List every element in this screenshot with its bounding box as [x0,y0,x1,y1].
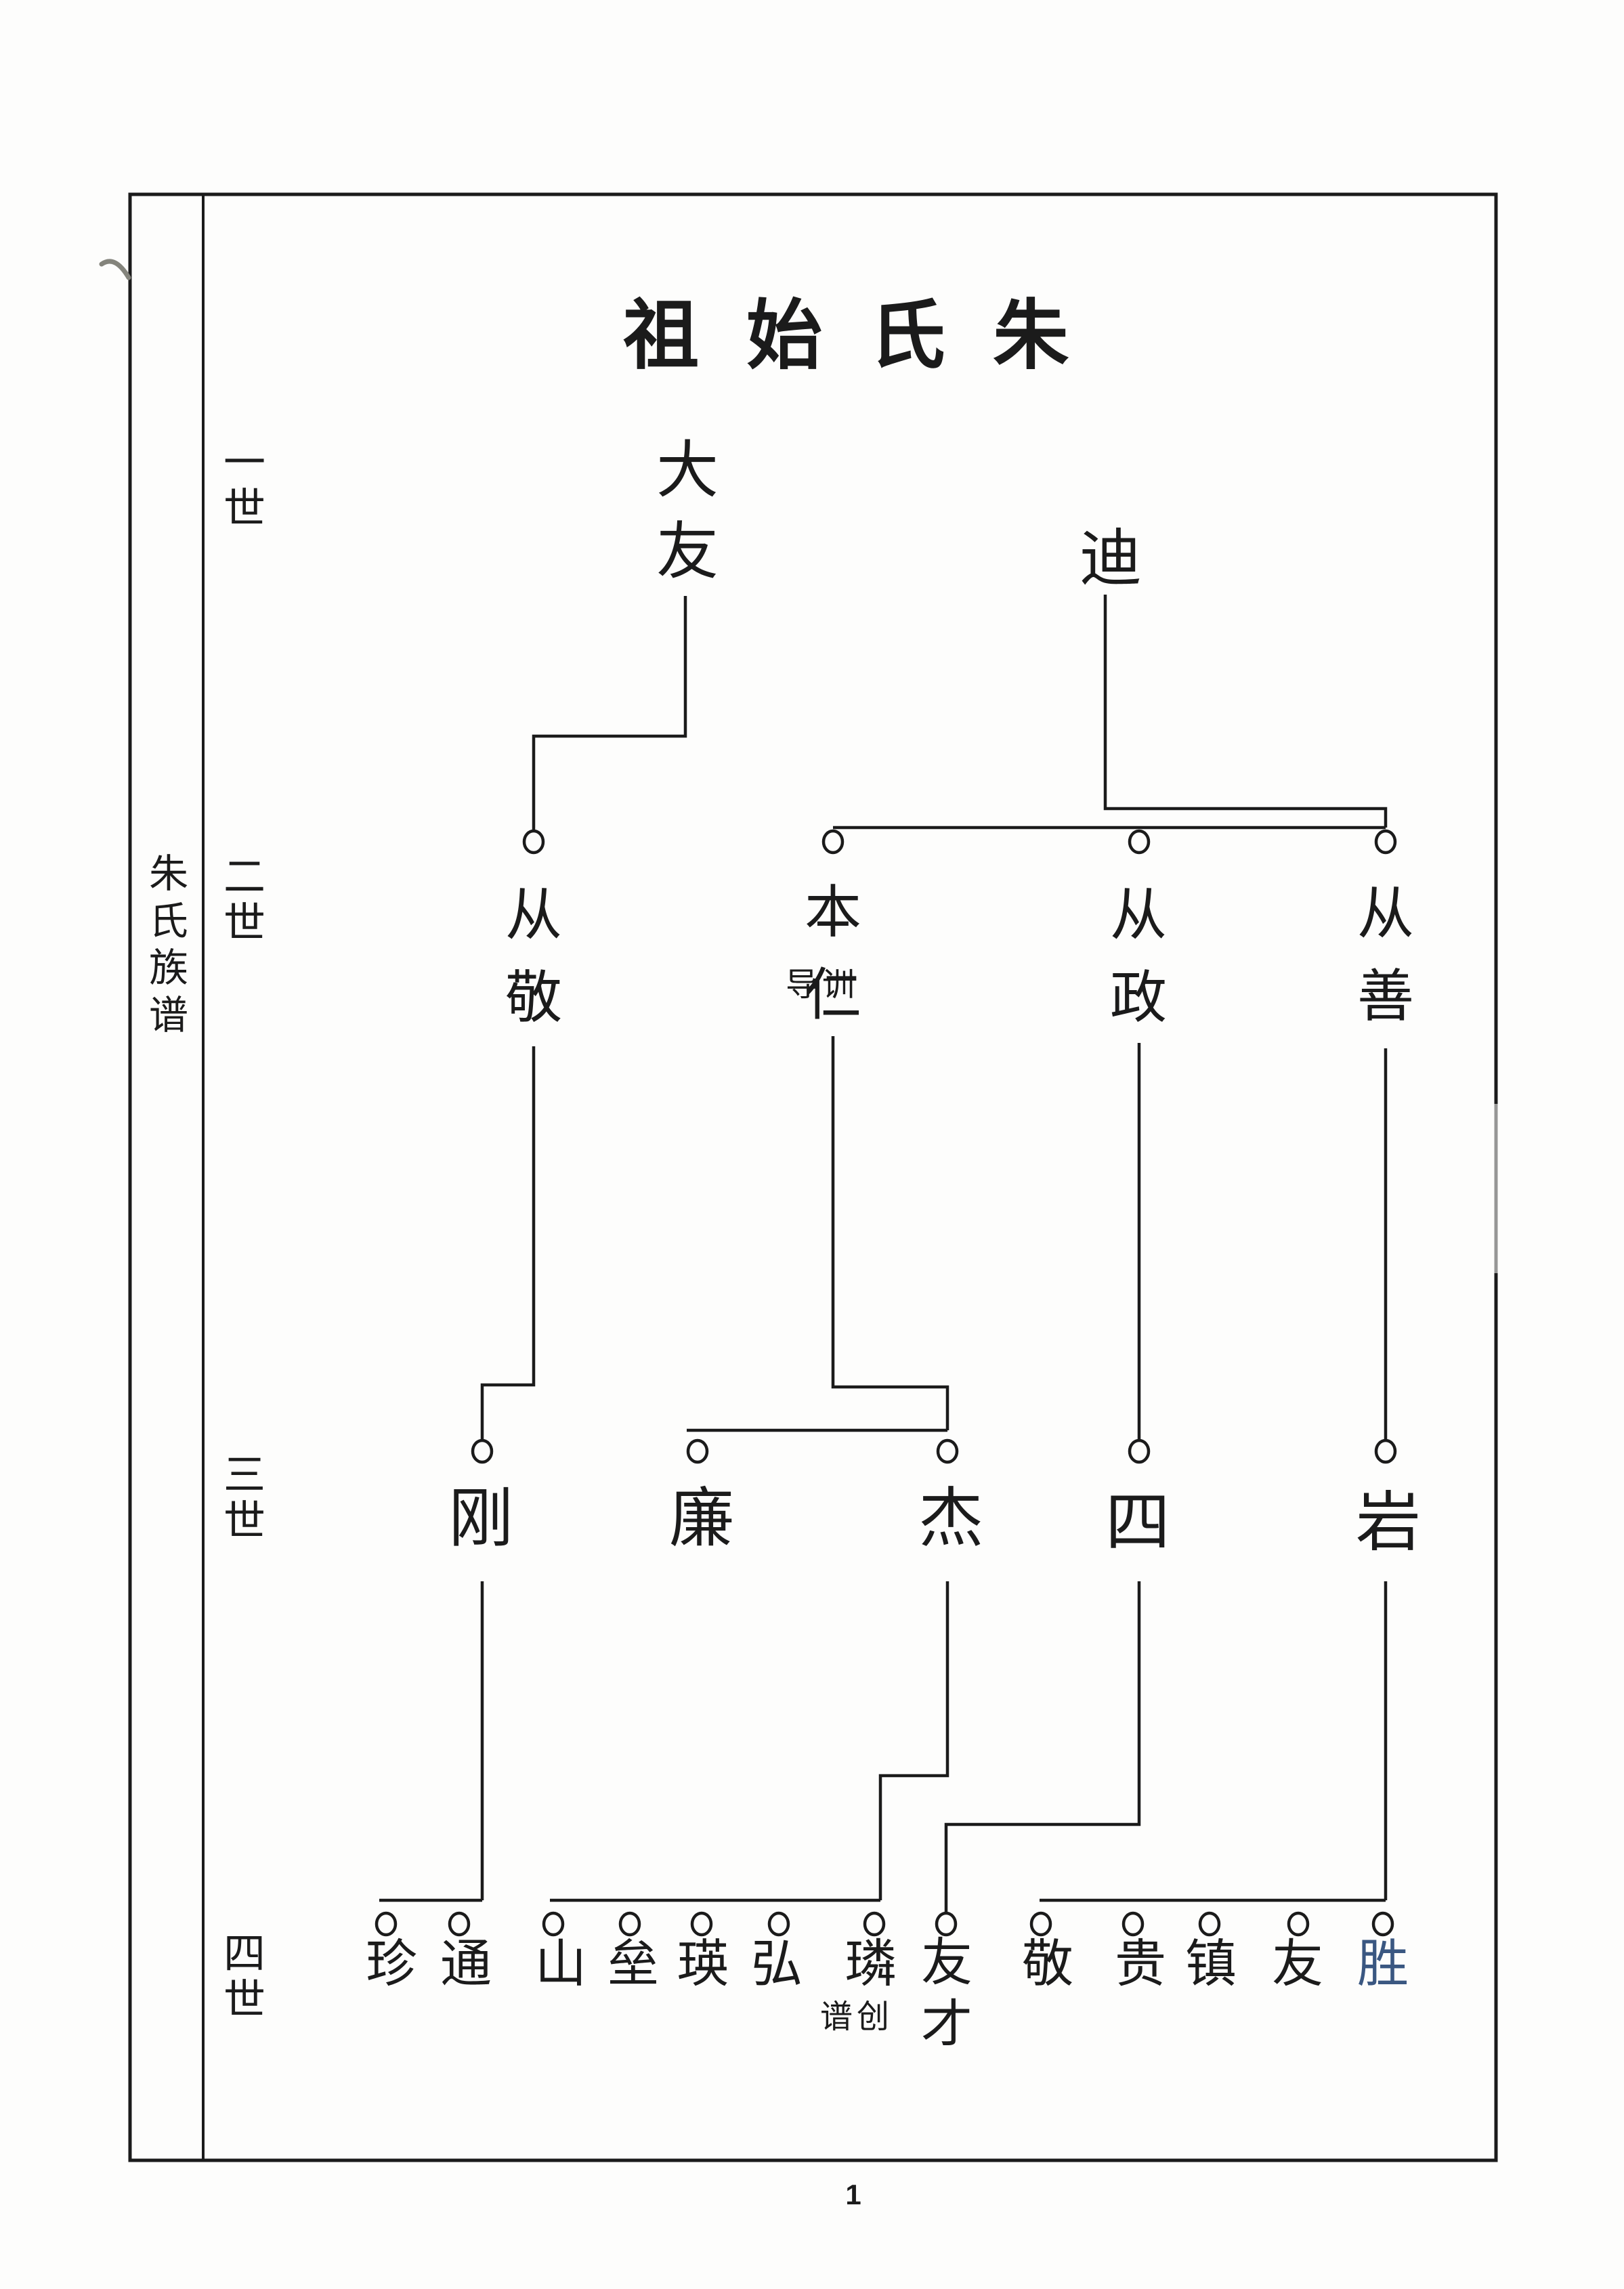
person-name: 垒 [604,1934,662,1996]
person-node-circle [524,831,543,853]
person-name: 贵 [1111,1934,1170,1996]
edge-benren-descend [833,1036,947,1430]
person-name: 璘 [842,1934,900,1996]
person-node-circle [544,1913,563,1935]
person-node-circle [865,1913,884,1935]
generation-label-3: 三世 [221,1453,268,1545]
person-node-circle [1200,1913,1219,1935]
edge-jie-descend [880,1581,947,1900]
person-name: 迪 [1077,519,1145,600]
person-node-circle [450,1913,469,1935]
person-node-circle [1130,1440,1149,1462]
person-name: 刚 [444,1483,518,1555]
generation-label-1: 一世 [221,440,268,532]
person-node-circle [688,1440,707,1462]
person-name: 通 [437,1934,495,1996]
person-name: 大友 [654,431,721,593]
genealogy-page: 祖始氏朱 朱氏族谱 一世 二世 三世 四世 大友 迪 从敬 本仁 导训 从政 从… [0,0,1624,2289]
person-name: 镇 [1182,1934,1240,1996]
person-name: 四 [1101,1487,1175,1559]
person-node-circle [1376,1440,1395,1462]
person-name: 敬 [1019,1934,1077,1996]
person-annotation: 导训 [768,966,876,1005]
person-node-circle [473,1440,492,1462]
person-node-circle [769,1913,788,1935]
person-name: 从善 [1354,874,1417,1039]
edge-dayou-congjing [534,596,685,831]
generation-label-2: 二世 [221,855,268,947]
generation-label-4: 四世 [221,1931,268,2024]
person-name: 本仁 [801,872,865,1037]
person-node-circle [937,1913,956,1935]
person-node-circle [1124,1913,1142,1935]
person-node-circle [1031,1913,1050,1935]
border-fade-artifact [1489,1104,1498,1273]
edge-di-descend [1105,595,1386,828]
edge-congjing-gang [482,1046,534,1440]
person-node-circle [377,1913,396,1935]
person-name: 瑛 [674,1934,732,1996]
person-node-circle [1376,831,1395,853]
person-name: 从敬 [502,875,565,1040]
person-node-circle [692,1913,711,1935]
person-name: 珍 [362,1934,421,1996]
person-name: 从政 [1107,875,1170,1040]
person-node-circle [1289,1913,1308,1935]
person-name: 友才 [916,1933,977,2056]
person-node-circle [1373,1913,1392,1935]
person-name-highlighted: 胜 [1354,1934,1412,1996]
person-name: 杰 [914,1483,988,1555]
pencil-mark [102,261,129,278]
person-name: 友 [1268,1934,1327,1996]
person-name: 岩 [1351,1487,1426,1559]
person-name: 山 [532,1934,590,1996]
page-number: 1 [830,2178,877,2212]
page-title: 祖始氏朱 [623,291,1116,382]
person-name: 弘 [748,1934,806,1996]
person-node-circle [938,1440,957,1462]
person-node-circle [1130,831,1149,853]
person-node-circle [824,831,842,853]
edge-si-youcai [946,1581,1139,1913]
person-name: 廉 [664,1483,739,1555]
person-annotation: 谱创 [799,1998,914,2037]
sidebar-book-label: 朱氏族谱 [147,851,190,1039]
person-node-circle [620,1913,639,1935]
page-frame [130,194,1496,2160]
